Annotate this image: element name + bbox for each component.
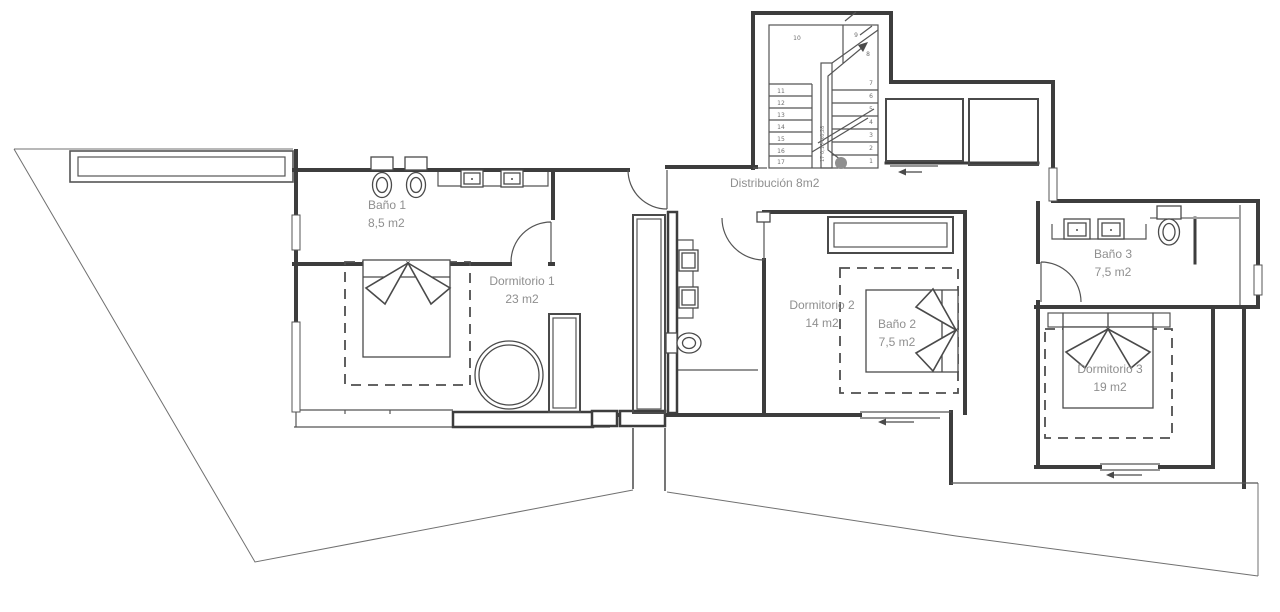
room-label-dormitorio2-name: Dormitorio 2 <box>789 298 855 312</box>
room-label-dormitorio3-name: Dormitorio 3 <box>1077 362 1143 376</box>
window-icon <box>1254 265 1262 295</box>
stair-annotation: 17 0,184x0,28 <box>820 126 826 162</box>
bano3: Baño 3 7,5 m2 <box>1052 205 1240 305</box>
toilet-icon <box>373 173 392 198</box>
room-label-bano3-name: Baño 3 <box>1094 247 1132 261</box>
svg-text:1: 1 <box>869 158 873 165</box>
corridor-bathroom <box>633 212 701 413</box>
closet <box>828 217 953 253</box>
door-arc-bano1 <box>511 222 551 262</box>
window-icon <box>292 322 300 412</box>
headboard <box>1063 313 1108 327</box>
headboard <box>1108 313 1153 327</box>
svg-text:15: 15 <box>777 136 785 143</box>
dormitorio3: Dormitorio 3 19 m2 <box>1045 313 1172 479</box>
stair-treads-left <box>769 84 812 168</box>
closet <box>886 99 963 161</box>
svg-text:11: 11 <box>777 88 785 95</box>
svg-text:6: 6 <box>869 93 873 100</box>
svg-text:5: 5 <box>869 106 873 113</box>
toilet-icon <box>405 157 427 170</box>
staircase: 17 0,184x0,28 1 2 3 4 5 6 7 8 9 10 11 12… <box>769 12 878 169</box>
room-label-dormitorio2-area: 14 m2 <box>805 316 839 330</box>
svg-text:17: 17 <box>777 159 785 166</box>
toilet-icon <box>677 333 701 353</box>
room-label-distribucion: Distribución 8m2 <box>730 176 820 190</box>
toilet-icon <box>1157 206 1181 219</box>
bano1: Baño 1 8,5 m2 <box>368 157 548 230</box>
closet <box>969 99 1038 165</box>
svg-text:12: 12 <box>777 100 785 107</box>
svg-text:7: 7 <box>869 80 873 87</box>
wardrobe <box>633 215 665 413</box>
room-label-bano3-area: 7,5 m2 <box>1095 265 1132 279</box>
double-bed <box>363 260 450 357</box>
door-arc-dormitorio2 <box>722 218 764 260</box>
toilet-icon <box>371 157 393 170</box>
toilet-icon <box>666 333 677 353</box>
svg-text:10: 10 <box>793 35 801 42</box>
floor-plan-canvas: 17 0,184x0,28 1 2 3 4 5 6 7 8 9 10 11 12… <box>0 0 1280 612</box>
svg-text:4: 4 <box>869 119 873 126</box>
door-arc-dormitorio1 <box>628 170 667 209</box>
double-bed <box>866 290 958 372</box>
room-label-bano2-name: Baño 2 <box>878 317 916 331</box>
headboard <box>1048 313 1063 327</box>
room-label-bano2-area: 7,5 m2 <box>879 335 916 349</box>
svg-text:14: 14 <box>777 124 785 131</box>
room-label-dormitorio1-name: Dormitorio 1 <box>489 274 555 288</box>
cabinet <box>549 314 580 412</box>
dormitorio1: Dormitorio 1 23 m2 <box>345 260 580 412</box>
door-jamb <box>757 212 770 222</box>
svg-text:2: 2 <box>869 145 873 152</box>
room-label-dormitorio1-area: 23 m2 <box>505 292 539 306</box>
svg-text:8: 8 <box>866 51 870 58</box>
vanity-counter <box>438 172 548 186</box>
headboard <box>1153 313 1170 327</box>
room-label-bano1-area: 8,5 m2 <box>368 216 405 230</box>
dormitorio2: Dormitorio 2 14 m2 Baño 2 7,5 m2 <box>789 217 958 426</box>
svg-text:13: 13 <box>777 112 785 119</box>
window-icon <box>1049 168 1057 201</box>
room-label-dormitorio3-area: 19 m2 <box>1093 380 1127 394</box>
toilet-icon <box>407 173 426 198</box>
wall-strip <box>668 212 677 413</box>
planter-strip <box>70 151 293 182</box>
svg-text:3: 3 <box>869 132 873 139</box>
stair-winders <box>832 25 878 63</box>
round-furniture <box>475 341 543 409</box>
door-arc-bano3 <box>1041 262 1081 302</box>
svg-text:9: 9 <box>854 32 858 39</box>
window-icon <box>292 215 300 250</box>
floor-plan-page: 17 0,184x0,28 1 2 3 4 5 6 7 8 9 10 11 12… <box>0 0 1280 612</box>
room-label-bano1-name: Baño 1 <box>368 198 406 212</box>
stair-start-dot <box>835 157 847 169</box>
svg-text:16: 16 <box>777 148 785 155</box>
